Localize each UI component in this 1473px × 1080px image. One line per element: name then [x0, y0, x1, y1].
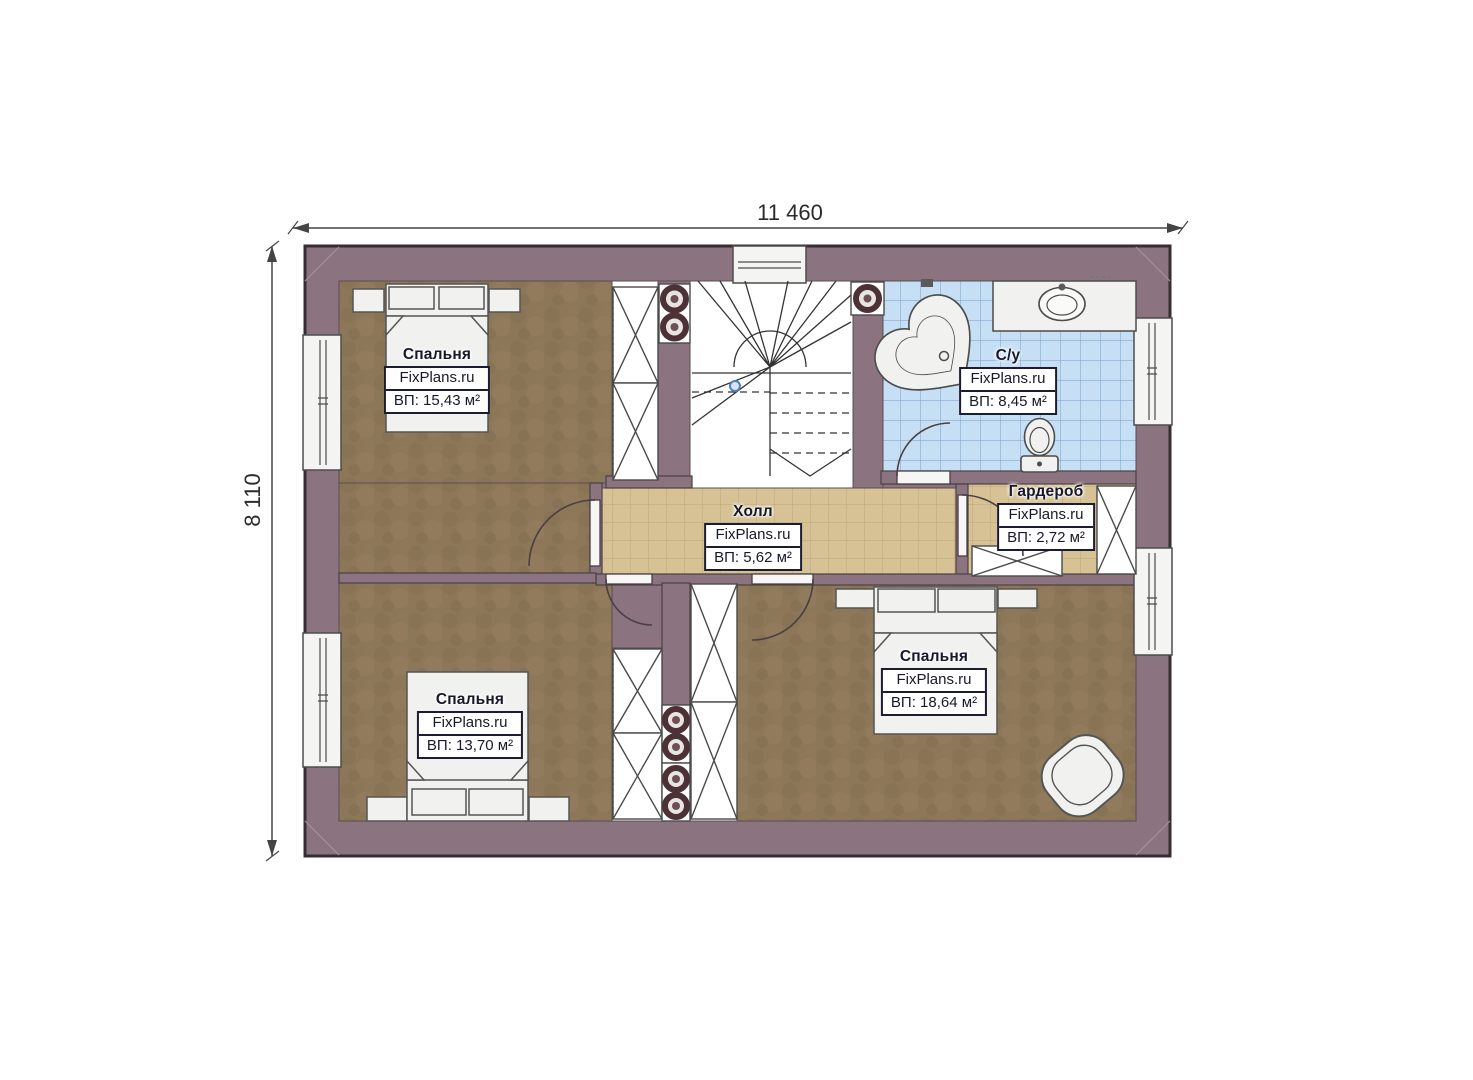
window-top-center	[733, 246, 806, 283]
stairwell-floor	[690, 281, 853, 488]
floor-plan-page: 11 460 8 110 Спальня FixPlans.ru ВП: 15,…	[0, 0, 1473, 1080]
room-info-box: FixPlans.ru ВП: 5,62 м²	[704, 523, 802, 571]
watermark-text: FixPlans.ru	[386, 368, 488, 391]
watermark-text: FixPlans.ru	[961, 369, 1055, 392]
pillow	[389, 287, 434, 309]
room-info-box: FixPlans.ru ВП: 2,72 м²	[997, 503, 1095, 551]
chimney-stair-right	[851, 282, 884, 315]
dimension-width-label: 11 460	[757, 200, 823, 226]
bath-faucet-icon	[921, 279, 933, 287]
nightstand	[353, 289, 384, 312]
pillow	[412, 789, 466, 815]
room-label-bedroom-bl: Спальня FixPlans.ru ВП: 13,70 м²	[417, 691, 523, 759]
room-info-box: FixPlans.ru ВП: 8,45 м²	[959, 367, 1057, 415]
room-area: ВП: 5,62 м²	[706, 548, 800, 569]
nightstand	[998, 589, 1037, 608]
room-name: С/у	[959, 347, 1057, 365]
room-name: Спальня	[384, 346, 490, 364]
room-label-bedroom-br: Спальня FixPlans.ru ВП: 18,64 м²	[881, 648, 987, 716]
room-info-box: FixPlans.ru ВП: 15,43 м²	[384, 366, 490, 414]
closet-tl-cabinet	[613, 287, 658, 480]
room-label-wardrobe: Гардероб FixPlans.ru ВП: 2,72 м²	[997, 483, 1095, 551]
room-name: Спальня	[881, 648, 987, 666]
window-right-bottom	[1134, 548, 1172, 655]
room-name: Спальня	[417, 691, 523, 709]
closet-bl-cabinet	[613, 649, 662, 819]
room-area: ВП: 2,72 м²	[999, 528, 1093, 549]
toilet-icon	[1021, 419, 1058, 473]
room-label-bathroom: С/у FixPlans.ru ВП: 8,45 м²	[959, 347, 1057, 415]
watermark-text: FixPlans.ru	[883, 670, 985, 693]
watermark-text: FixPlans.ru	[419, 713, 521, 736]
room-area: ВП: 8,45 м²	[961, 392, 1055, 413]
dimension-top	[288, 221, 1188, 234]
nightstand	[367, 797, 407, 821]
stair-marker	[730, 381, 740, 391]
bedroom-tl-floor-lower	[339, 483, 590, 578]
pillow	[469, 789, 523, 815]
nightstand	[529, 797, 569, 821]
pillow	[439, 287, 484, 309]
watermark-text: FixPlans.ru	[999, 505, 1093, 528]
pillow	[878, 589, 935, 612]
room-name: Гардероб	[997, 483, 1095, 501]
room-name: Холл	[704, 503, 802, 521]
pillow	[938, 589, 995, 612]
room-label-hall: Холл FixPlans.ru ВП: 5,62 м²	[704, 503, 802, 571]
chimney-bottom	[662, 705, 690, 821]
room-area: ВП: 18,64 м²	[883, 693, 985, 714]
room-info-box: FixPlans.ru ВП: 18,64 м²	[881, 668, 987, 716]
room-area: ВП: 15,43 м²	[386, 391, 488, 412]
dimension-left	[266, 241, 279, 861]
room-area: ВП: 13,70 м²	[419, 736, 521, 757]
window-left-top	[303, 335, 341, 470]
room-label-bedroom-tl: Спальня FixPlans.ru ВП: 15,43 м²	[384, 346, 490, 414]
room-info-box: FixPlans.ru ВП: 13,70 м²	[417, 711, 523, 759]
chimney-stair-left	[659, 284, 690, 343]
wardrobe-bottom-cabinet	[972, 546, 1062, 576]
nightstand	[489, 289, 520, 312]
closet-br-cabinet	[691, 584, 737, 819]
dimension-height-label: 8 110	[240, 473, 266, 526]
window-left-bottom	[303, 633, 341, 767]
wardrobe-side-cabinet	[1097, 486, 1136, 574]
window-right-top	[1134, 318, 1172, 425]
sink-icon	[993, 277, 1136, 331]
watermark-text: FixPlans.ru	[706, 525, 800, 548]
nightstand	[836, 589, 875, 608]
